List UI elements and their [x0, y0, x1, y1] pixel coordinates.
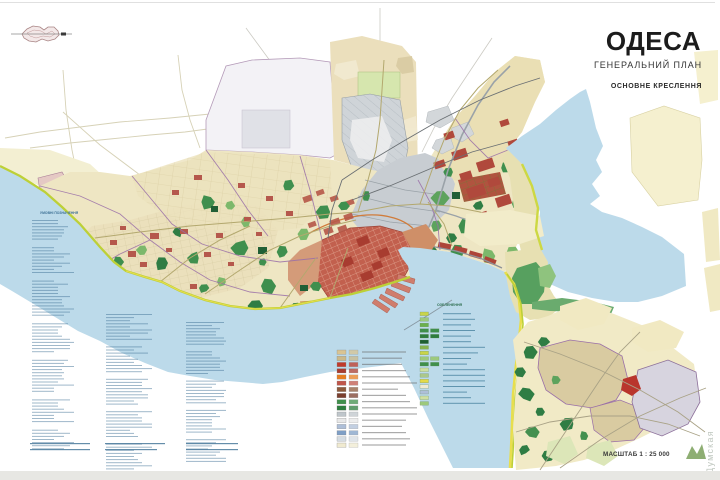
svg-text:ОДЕСА: ОДЕСА [606, 26, 701, 56]
svg-text:ОЗЕЛЕНЕННЯ: ОЗЕЛЕНЕННЯ [437, 303, 463, 307]
svg-text:Думская: Думская [705, 430, 715, 474]
svg-text:ГЕНЕРАЛЬНИЙ ПЛАН: ГЕНЕРАЛЬНИЙ ПЛАН [594, 59, 702, 70]
svg-text:МАСШТАБ 1 : 25 000: МАСШТАБ 1 : 25 000 [603, 451, 670, 458]
svg-text:УМОВНІ ПОЗНАЧЕННЯ: УМОВНІ ПОЗНАЧЕННЯ [40, 211, 79, 215]
svg-text:ОСНОВНЕ КРЕСЛЕННЯ: ОСНОВНЕ КРЕСЛЕННЯ [611, 83, 702, 90]
